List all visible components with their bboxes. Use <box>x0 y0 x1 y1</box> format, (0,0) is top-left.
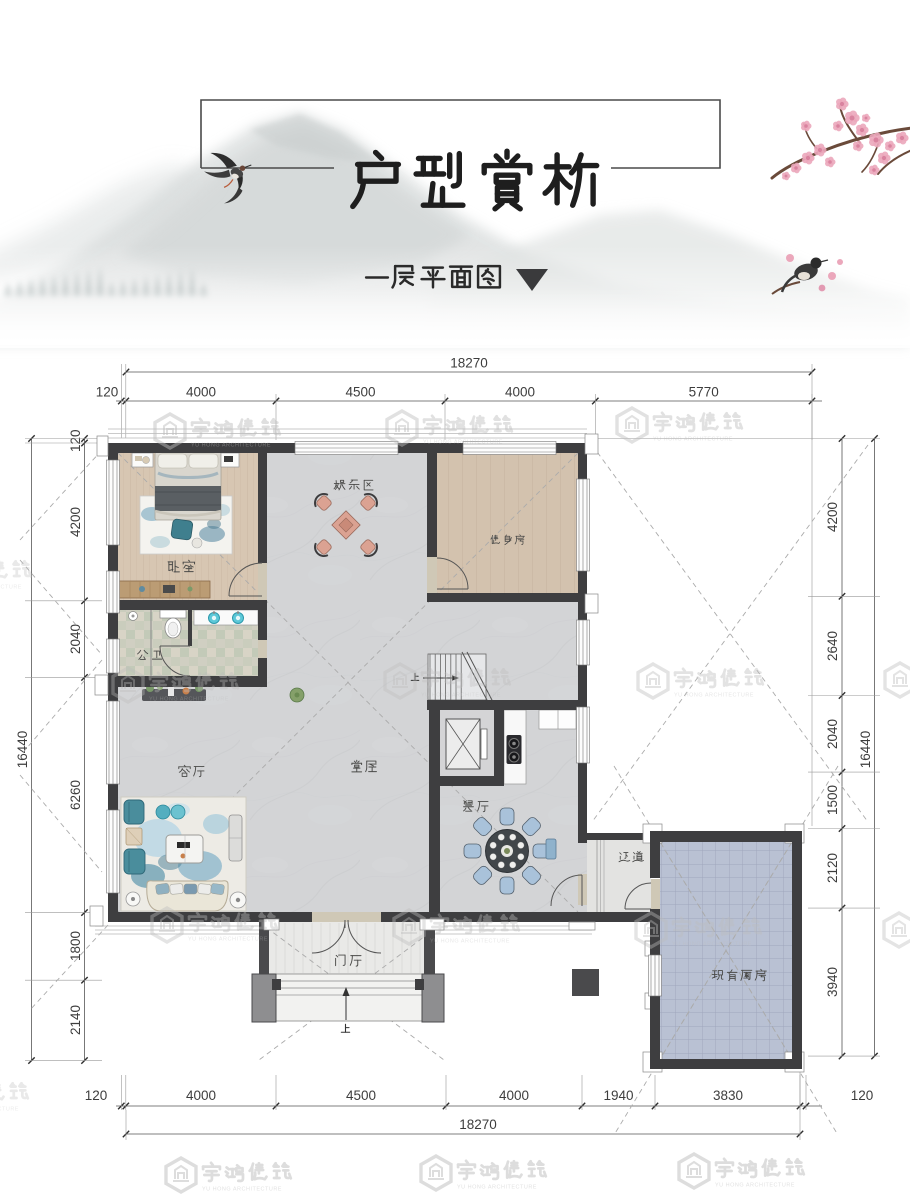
svg-text:YU HONG ARCHITECTURE: YU HONG ARCHITECTURE <box>430 939 510 945</box>
svg-text:16440: 16440 <box>858 731 873 769</box>
svg-text:5770: 5770 <box>689 385 719 400</box>
svg-text:120: 120 <box>68 429 83 452</box>
svg-text:16440: 16440 <box>15 731 30 769</box>
svg-text:6260: 6260 <box>68 780 83 810</box>
svg-text:4000: 4000 <box>505 385 535 400</box>
svg-text:YU HONG ARCHITECTURE: YU HONG ARCHITECTURE <box>421 693 501 699</box>
svg-text:2640: 2640 <box>825 631 840 661</box>
svg-text:YU HONG ARCHITECTURE: YU HONG ARCHITECTURE <box>423 440 503 446</box>
svg-text:1940: 1940 <box>603 1088 633 1103</box>
svg-text:1800: 1800 <box>68 931 83 961</box>
svg-text:4000: 4000 <box>186 1088 216 1103</box>
svg-text:3830: 3830 <box>713 1088 743 1103</box>
svg-text:18270: 18270 <box>459 1117 497 1132</box>
svg-text:YU HONG ARCHITECTURE: YU HONG ARCHITECTURE <box>0 585 22 591</box>
svg-text:2120: 2120 <box>825 853 840 883</box>
svg-text:120: 120 <box>85 1088 108 1103</box>
svg-text:4200: 4200 <box>68 507 83 537</box>
svg-text:YU HONG ARCHITECTURE: YU HONG ARCHITECTURE <box>715 1183 795 1189</box>
svg-text:4500: 4500 <box>345 385 375 400</box>
svg-text:YU HONG ARCHITECTURE: YU HONG ARCHITECTURE <box>457 1185 537 1191</box>
svg-text:4500: 4500 <box>346 1088 376 1103</box>
svg-text:2040: 2040 <box>68 624 83 654</box>
svg-text:18270: 18270 <box>450 356 488 371</box>
svg-text:120: 120 <box>96 385 119 400</box>
svg-text:2040: 2040 <box>825 719 840 749</box>
svg-text:1500: 1500 <box>825 785 840 815</box>
svg-text:2140: 2140 <box>68 1005 83 1035</box>
svg-text:3940: 3940 <box>825 967 840 997</box>
svg-text:YU HONG ARCHITECTURE: YU HONG ARCHITECTURE <box>0 1107 19 1113</box>
svg-text:YU HONG ARCHITECTURE: YU HONG ARCHITECTURE <box>202 1187 282 1193</box>
svg-text:YU HONG ARCHITECTURE: YU HONG ARCHITECTURE <box>188 937 268 943</box>
svg-text:120: 120 <box>851 1088 874 1103</box>
svg-text:YU HONG ARCHITECTURE: YU HONG ARCHITECTURE <box>672 942 752 948</box>
svg-text:YU HONG ARCHITECTURE: YU HONG ARCHITECTURE <box>674 693 754 699</box>
svg-text:YU HONG ARCHITECTURE: YU HONG ARCHITECTURE <box>191 443 271 449</box>
svg-text:4000: 4000 <box>499 1088 529 1103</box>
svg-text:YU HONG ARCHITECTURE: YU HONG ARCHITECTURE <box>149 697 229 703</box>
svg-text:4200: 4200 <box>825 502 840 532</box>
svg-text:4000: 4000 <box>186 385 216 400</box>
svg-text:YU HONG ARCHITECTURE: YU HONG ARCHITECTURE <box>653 437 733 443</box>
